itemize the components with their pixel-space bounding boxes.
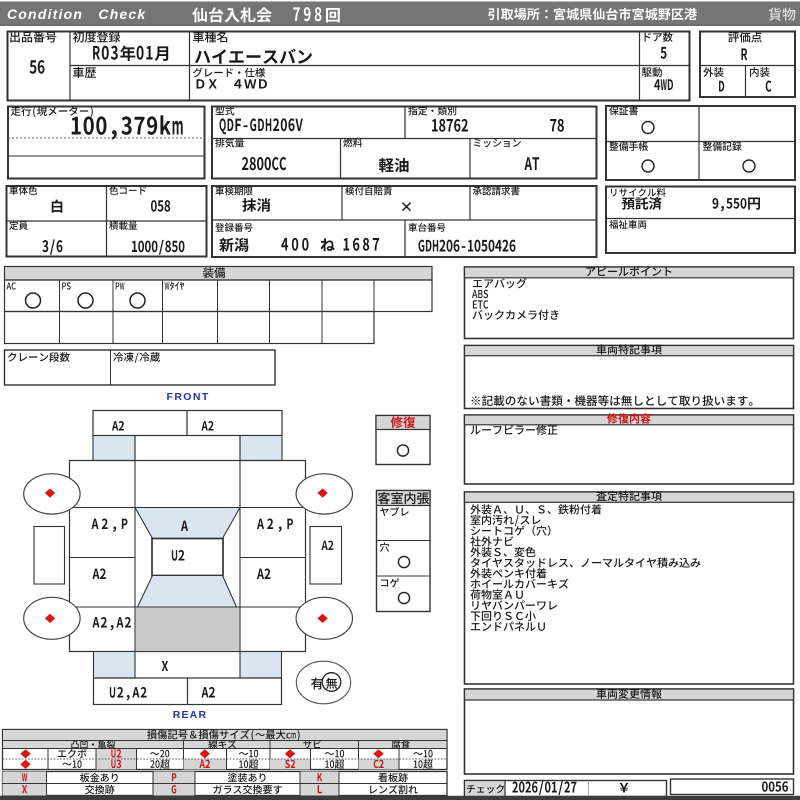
svg-text:REAR: REAR bbox=[173, 709, 208, 721]
svg-text:FRONT: FRONT bbox=[167, 391, 210, 403]
svg-text:Condition Check: Condition Check bbox=[7, 6, 146, 22]
